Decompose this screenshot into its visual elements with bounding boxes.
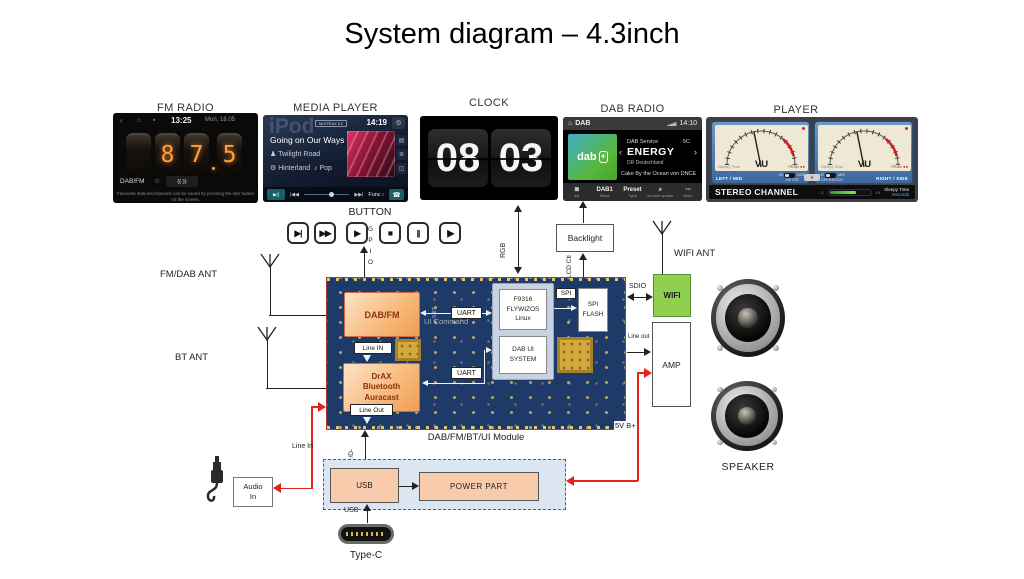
speaker-top [711, 279, 785, 357]
dab-fm-chip: DAB/FM [344, 292, 420, 337]
uart2-line-h [427, 383, 485, 384]
media-player-screen: iPod MIXTRAX EZ 14:19 ⚙ Going on Our Way… [263, 115, 408, 202]
eq-icon[interactable]: ▤ [396, 135, 407, 146]
progress-thumb[interactable] [329, 192, 334, 197]
screw [773, 285, 779, 291]
mp-transport-bar: ▶|| |◀◀ ▶▶| Func › ☎ [263, 187, 408, 202]
dab-menu-bar: ≣list DAB1Band PresetType ⌕service updat… [563, 183, 702, 201]
level-meter[interactable] [828, 189, 872, 196]
line-in-arrowhead [363, 355, 371, 362]
type-c-connector [338, 524, 394, 544]
dab-header: ⌂ DAB ▂▄▆ 14:10 [563, 117, 702, 130]
brand-stack: Sleepy TimeRecords [884, 187, 909, 198]
album-row: ⚙ Hinterland ♪ Pop [270, 164, 332, 172]
line-out-conn-label: Line out [628, 334, 650, 342]
decimal-dot [212, 167, 215, 170]
pause-button[interactable]: || [407, 222, 429, 244]
vu-strip: LEFT / MID INOUT METER [712, 172, 809, 184]
sdio-line [633, 297, 647, 298]
sdio-arrowhead-right [646, 293, 653, 301]
fm-dab-ant-label: FM/DAB ANT [160, 269, 217, 280]
station-name: ENERGY [627, 146, 674, 158]
audio-jack-icon [201, 455, 231, 505]
flip-card-hours: 08 [428, 129, 488, 187]
power-line-h [574, 480, 638, 482]
rgb-line [518, 211, 519, 268]
stop-button[interactable]: ■ [379, 222, 401, 244]
type-c-pins [346, 532, 386, 536]
menu-item-band[interactable]: DAB1Band [591, 183, 619, 201]
fm-dab-ant-line-h [269, 315, 326, 316]
flip-split-line [428, 158, 488, 160]
vu-meter-right: VU Sleepy Time PEAK ●● LRM/S OPERATION R… [814, 121, 913, 184]
bt-ant-line-v [267, 340, 268, 388]
dab-plus-logo: dab+ [568, 134, 617, 180]
fm-caption-line2: on the screen. [113, 197, 258, 202]
nixie-tube: 5 [217, 133, 242, 175]
level-fill [830, 191, 856, 194]
audio-in-box: AudioIn [233, 477, 273, 507]
more-icon: ⋯ [685, 187, 691, 193]
dropdown-button[interactable]: ▾ [804, 174, 820, 181]
gpio-line [364, 252, 365, 277]
flip-card-minutes: 03 [491, 129, 551, 187]
album-art-streaks [347, 131, 395, 177]
line-out-conn-line [627, 352, 644, 353]
type-c-inner [341, 527, 391, 541]
power-part-box: POWER PART [419, 472, 539, 501]
home-icon[interactable]: ⌂ [137, 117, 141, 124]
gold-pad [395, 339, 421, 361]
speaker-dome [738, 308, 757, 328]
line-out-chip-label: Line Out [350, 404, 393, 416]
clock-label: CLOCK [420, 97, 558, 109]
spi-arrowhead-right [571, 305, 577, 311]
wifi-box: WIFI [653, 274, 691, 317]
brand-text: Sleepy Time [718, 164, 740, 169]
vu-face: VU Sleepy Time PEAK ●● [715, 125, 808, 171]
progress-bar[interactable] [304, 194, 349, 195]
func-button[interactable]: Func › [368, 192, 384, 198]
channel-id: 5C [683, 139, 690, 145]
screw [772, 440, 778, 446]
power-arrowhead-powerbox [566, 476, 574, 486]
stereo-channel-bar: STEREO CHANNEL -1 +1 Sleepy TimeRecords [709, 185, 915, 199]
rgb-label: RGB [500, 224, 507, 258]
line-in-chip-label: Line IN [354, 342, 392, 354]
toggle-switch[interactable] [825, 173, 836, 178]
peak-indicator: PEAK ●● [788, 164, 805, 169]
track-title: Going on Our Ways [270, 135, 344, 145]
peak-indicator: PEAK ●● [891, 164, 908, 169]
screw [772, 387, 778, 393]
prev-track-button[interactable]: |◀◀ [290, 192, 299, 198]
genre-note-icon: ♪ [314, 165, 318, 172]
bt-ant-label: BT ANT [175, 352, 208, 363]
silkscreen-text: 0.6T [432, 294, 438, 318]
usb-to-power-arrowhead [412, 482, 419, 490]
album-gear-icon: ⚙ [270, 165, 276, 172]
fm-date: Mon, 18.05 [205, 117, 235, 123]
search-icon: ⌕ [659, 187, 662, 193]
browse-icon[interactable]: ◫ [396, 163, 407, 174]
dab-ui-system-box: DAB UISYSTEM [499, 336, 547, 374]
qfp-chip [557, 337, 593, 373]
line-in-label: Line In [292, 443, 313, 450]
line-in-arrowhead-pcb [318, 402, 326, 412]
screw [773, 345, 779, 351]
menu-item-list[interactable]: ≣list [563, 183, 591, 201]
backlight-to-screen-line [583, 207, 584, 223]
line-in-line-h [281, 488, 312, 490]
speaker-bottom [711, 381, 783, 451]
settings-gear-icon[interactable]: ⚙ [392, 117, 405, 129]
wifi-ant-line [662, 234, 663, 274]
spi-flash-box: SPIFLASH [578, 288, 608, 332]
service-type: DAB Service [627, 139, 658, 145]
channel-label: STEREO CHANNEL [715, 187, 798, 197]
screw [717, 345, 723, 351]
artist-icon: ♟ [270, 151, 276, 158]
dab-time: 14:10 [679, 120, 697, 127]
dab-radio-label: DAB RADIO [563, 103, 702, 115]
meter-switch[interactable]: INOUT METER [779, 173, 805, 182]
slide-canvas: System diagram – 4.3inch FM RADIO MEDIA … [0, 0, 1024, 579]
amp-box: AMP [652, 322, 691, 407]
skip-end-button[interactable]: ▶| [287, 222, 309, 244]
home-icon[interactable]: ⌂ [568, 120, 572, 127]
bt-ant-line-h [266, 388, 326, 389]
uart2-label: UART [451, 367, 482, 379]
fm-dab-ant-line-v [270, 267, 271, 315]
band-button[interactable]: DAB/FM [120, 178, 145, 185]
next-service-chevron[interactable]: › [694, 147, 697, 157]
screw [717, 285, 723, 291]
brand-text: Sleepy Time [821, 164, 843, 169]
gpio-label: GPIO [367, 226, 374, 270]
spi-label: SPI [556, 288, 576, 299]
power-line-v [637, 372, 639, 481]
usb-to-power-line [399, 486, 413, 487]
power-arrowhead-amp [644, 368, 652, 378]
dab-radio-screen: ⌂ DAB ▂▄▆ 14:10 dab+ ‹ › DAB Service 5C … [563, 117, 702, 201]
mp-time: 14:19 [367, 118, 387, 127]
play-button[interactable]: ▶ [346, 222, 368, 244]
line-in-arrowhead-audio [273, 483, 281, 493]
menu-item-preset[interactable]: PresetType [619, 183, 647, 201]
screw [717, 387, 723, 393]
type-c-label: Type-C [338, 550, 394, 561]
sdio-label: SDIO [629, 283, 646, 290]
soc-box: F9316FLYWIZOSLinux [499, 289, 547, 330]
pcb-to-backlight-line [583, 259, 584, 277]
vu-meter-left: VU Sleepy Time PEAK ●● LEFT / MID INOUT … [711, 121, 810, 184]
right-side-label: RIGHT / SIDE [876, 176, 908, 181]
clock-screen: 08 03 [420, 116, 558, 200]
v5-label: 5V B+ [614, 421, 637, 430]
line-in-line-to-pcb [311, 406, 318, 408]
ui-command-label: UI Command [424, 317, 468, 326]
line-out-arrowhead [363, 417, 371, 424]
artist-row: ♟ Twilight Road [270, 150, 320, 158]
usb-line [367, 510, 368, 523]
line-out-arrowhead-amp [644, 348, 651, 356]
dab-band: DAB [575, 120, 590, 127]
fm-caption-line1: Favourite stations/channels can be saved… [113, 191, 258, 196]
menu-item-more[interactable]: ⋯More [674, 183, 702, 201]
nixie-tube: 7 [184, 133, 209, 175]
vu-player-screen: VU Sleepy Time PEAK ●● LEFT / MID INOUT … [706, 117, 918, 202]
record-dot [905, 127, 908, 130]
operation-switch[interactable]: LRM/S OPERATION [819, 173, 845, 182]
next-track-button[interactable]: ▶▶| [354, 192, 363, 198]
fm-time: 13:25 [171, 116, 191, 125]
now-playing: Cake By the Ocean von DNCE [621, 171, 696, 177]
left-mid-label: LEFT / MID [716, 176, 742, 181]
fm-radio-screen: ‹ ⌂ ▪ 13:25 Mon, 18.05 8 7 5 DAB/FM ☆ ((… [113, 113, 258, 203]
step-forward-button[interactable]: |▶ [439, 222, 461, 244]
flip-split-line [491, 158, 551, 160]
fast-forward-button[interactable]: ▶▶ [314, 222, 336, 244]
nixie-tube [126, 133, 151, 175]
record-dot [802, 127, 805, 130]
album-art [347, 131, 395, 177]
screw [717, 440, 723, 446]
signal-bars-icon: ▂▄▆ [667, 121, 676, 126]
vu-strip: LRM/S OPERATION RIGHT / SIDE [815, 172, 912, 184]
pcb-caption: DAB/FM/BT/UI Module [326, 432, 626, 443]
menu-item-service-update[interactable]: ⌕service update [646, 183, 674, 201]
list-icon[interactable]: ≣ [396, 149, 407, 160]
lcd-ctl-label: LCD Ctl [566, 250, 573, 278]
back-icon[interactable]: ‹ [120, 116, 123, 125]
rgb-arrowhead-bottom [514, 267, 522, 274]
list-icon: ≣ [574, 187, 579, 193]
mixtrax-badge: MIXTRAX EZ [315, 120, 347, 127]
vu-face: VU Sleepy Time PEAK ●● [818, 125, 911, 171]
page-title: System diagram – 4.3inch [0, 18, 1024, 51]
menu-icon[interactable]: ▪ [153, 117, 155, 124]
media-player-label: MEDIA PLAYER [263, 102, 408, 114]
player-label: PLAYER [731, 104, 861, 116]
favorite-icon[interactable]: ☆ [154, 177, 160, 185]
ensemble-name: DR Deutschland [627, 160, 663, 166]
phone-button[interactable]: ☎ [389, 189, 404, 200]
nixie-tube: 8 [155, 133, 180, 175]
usb-conn-label: USB [344, 507, 358, 514]
play-pause-button[interactable]: ▶|| [267, 189, 285, 200]
broadcast-icon[interactable]: ((·)) [166, 176, 198, 187]
backlight-box: Backlight [556, 224, 614, 252]
dab-plus-sign: + [599, 151, 608, 163]
speaker-label: SPEAKER [711, 461, 785, 473]
button-row-label: BUTTON [330, 206, 410, 218]
usb-box: USB [330, 468, 399, 503]
wifi-ant-label: WIFI ANT [674, 248, 715, 259]
uart2-line-v [484, 350, 485, 384]
toggle-switch[interactable] [784, 173, 795, 178]
prev-service-chevron[interactable]: ‹ [619, 147, 622, 157]
